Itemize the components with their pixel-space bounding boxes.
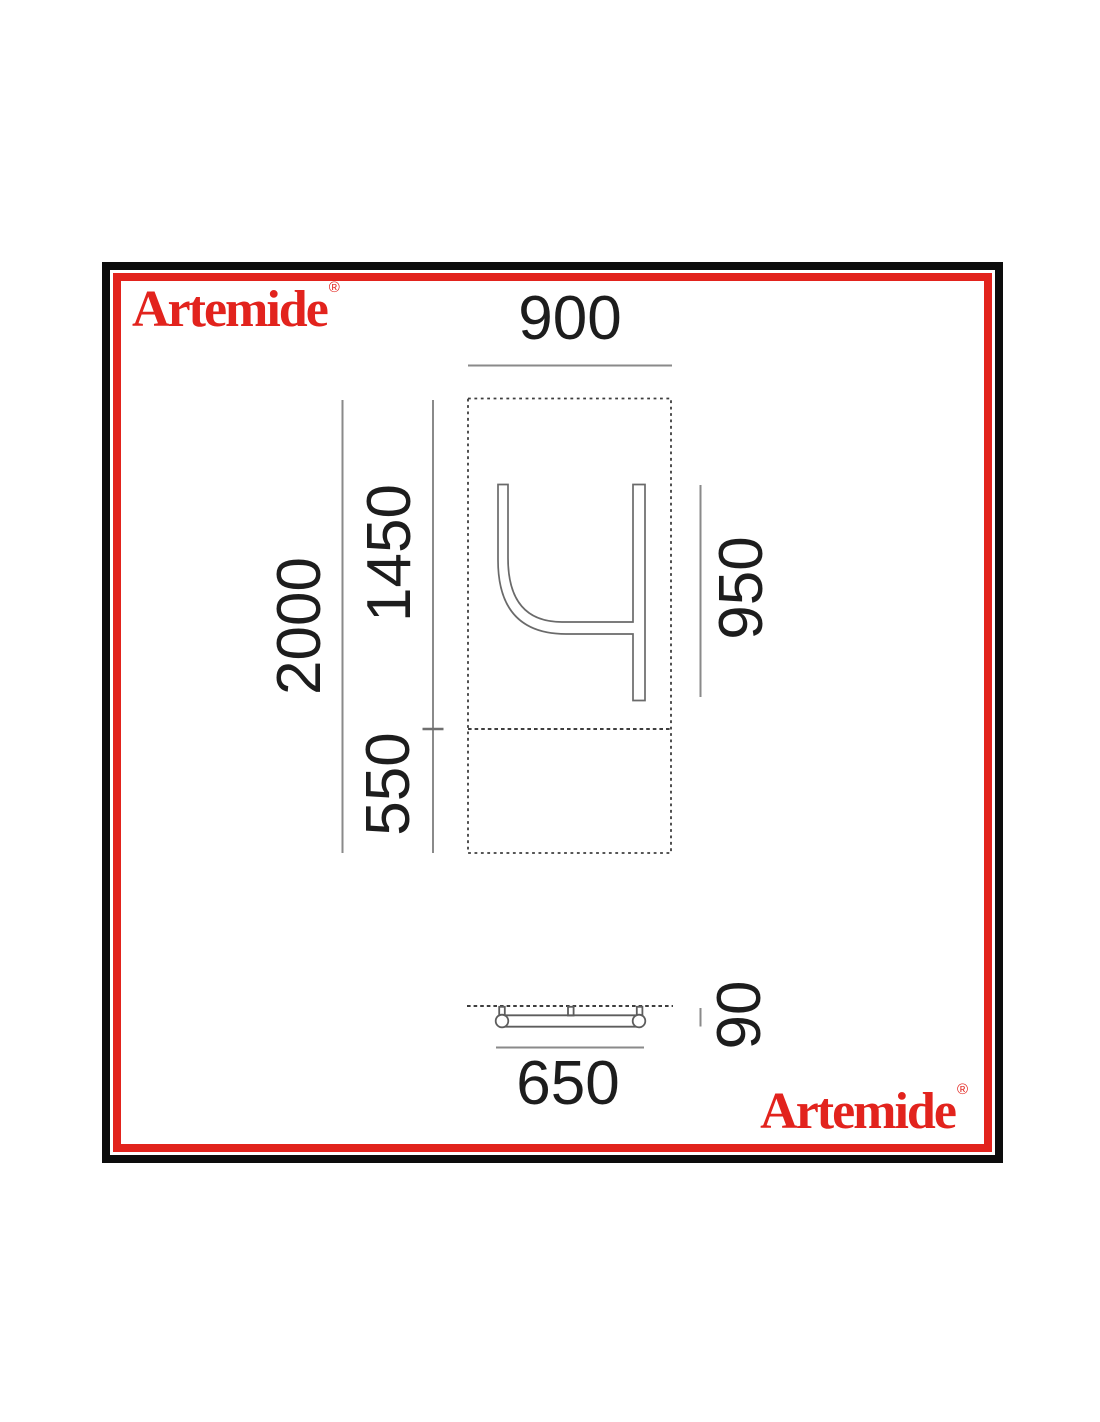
dim-label-right-height-950: 950 (711, 536, 773, 639)
lamp-front-outline (498, 485, 645, 701)
drawing-sheet: Artemide® Artemide® 900 2000 1450 550 95… (0, 0, 1100, 1422)
tube-end-cap-left (496, 1015, 509, 1028)
mount-stem-center (568, 1007, 574, 1016)
tube-end-cap-right (633, 1015, 646, 1028)
dim-label-upper-height-1450: 1450 (359, 484, 421, 622)
dim-label-side-depth-90: 90 (709, 981, 771, 1050)
dim-label-width-900: 900 (518, 288, 621, 350)
dim-label-lower-height-550: 550 (358, 732, 420, 835)
dim-label-total-height-2000: 2000 (269, 557, 331, 695)
dimension-drawing (0, 0, 1100, 1422)
dim-label-side-width-650: 650 (516, 1053, 619, 1115)
